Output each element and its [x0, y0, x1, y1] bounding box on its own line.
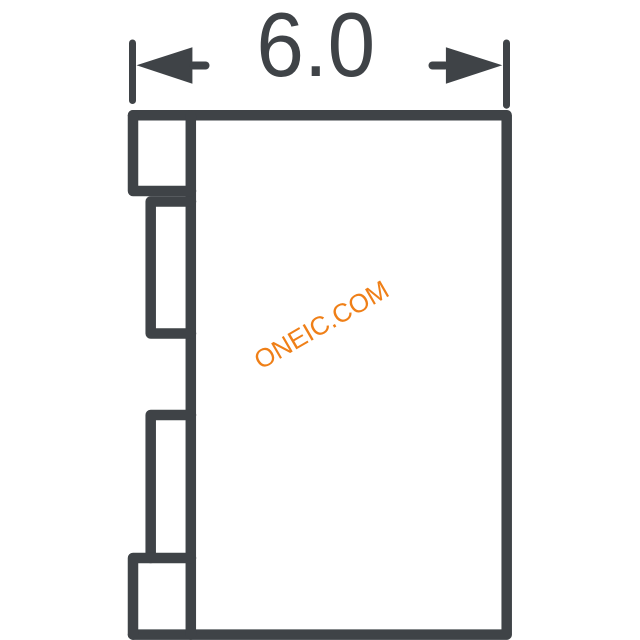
svg-text:ONEIC.COM: ONEIC.COM — [249, 274, 394, 375]
svg-text:6.0: 6.0 — [256, 0, 375, 95]
